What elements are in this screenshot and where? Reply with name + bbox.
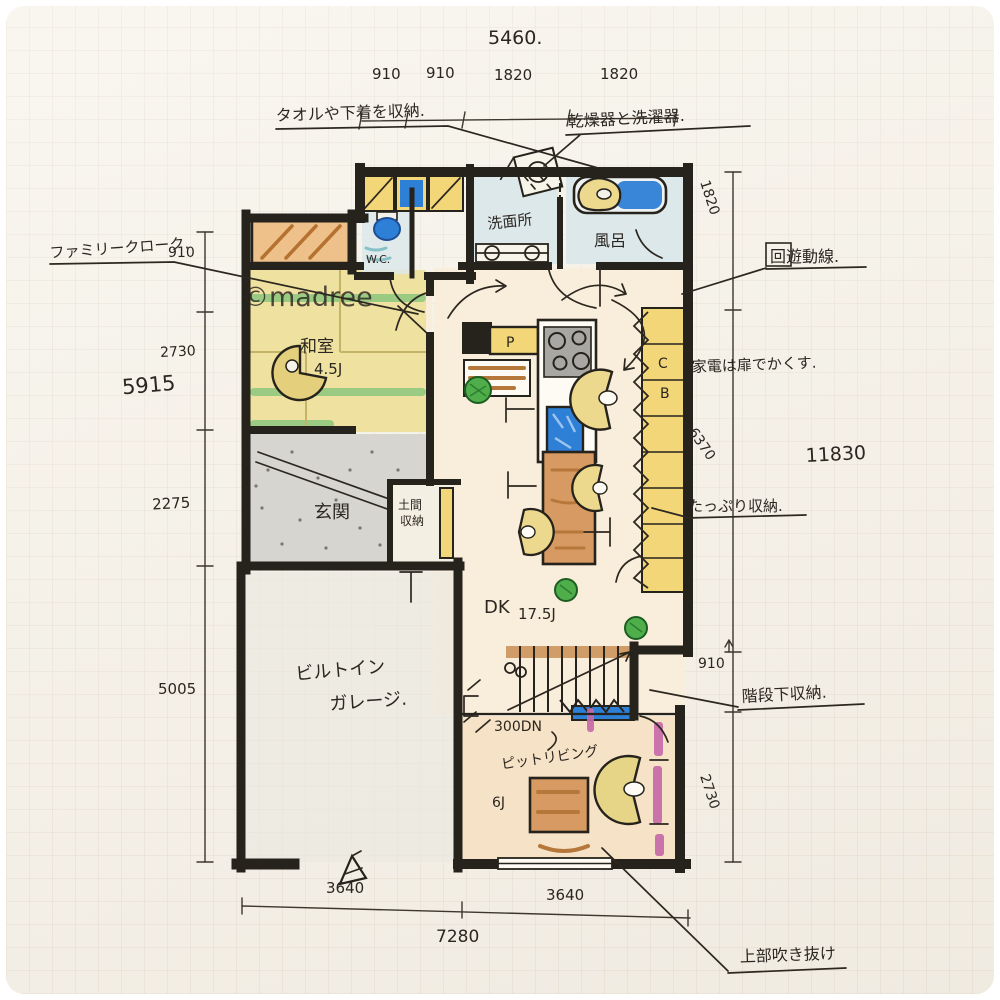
- label-cupboard-c: C: [658, 356, 668, 372]
- label-cupboard-b: B: [660, 386, 670, 402]
- dim-left-seg3: 2275: [152, 493, 191, 513]
- dim-top-seg3: 1820: [494, 66, 532, 84]
- floor-plan-svg: 5460. 910 910 1820 1820 910 2730 5915 22…: [0, 0, 1000, 1000]
- dim-right-seg3: 910: [698, 656, 725, 672]
- annotation-dryer-washer: 乾燥器と洗濯器.: [567, 106, 685, 131]
- label-pantry-p: P: [506, 335, 514, 351]
- annotation-towel-storage: タオルや下着を収納.: [275, 101, 425, 125]
- dryer-leader: [544, 126, 750, 166]
- kitchen-wall-chunk: [462, 322, 492, 354]
- dim-top-seg1: 910: [372, 65, 401, 83]
- dim-bottom-seg2: 3640: [546, 886, 584, 904]
- doma-door: [440, 488, 453, 558]
- annotation-circulation: 回遊動線.: [770, 247, 839, 266]
- annotation-void-above: 上部吹き抜け: [739, 944, 836, 966]
- annotation-ample-storage: たっぷり収納.: [688, 497, 783, 515]
- garage-floor: [246, 572, 454, 862]
- dim-right-seg1: 1820: [696, 178, 722, 217]
- annotation-under-stair: 階段下収納.: [741, 683, 827, 706]
- person-head: [593, 482, 607, 494]
- label-step-down: 300DN: [494, 719, 542, 735]
- dim-right-seg4: 2730: [696, 772, 722, 811]
- pantry-shelf-column: [642, 308, 686, 592]
- annotation-hide-appliances: 家電は扉でかくす.: [692, 354, 817, 376]
- room-bath: 風呂: [594, 231, 626, 250]
- room-dk-size: 17.5J: [518, 605, 556, 623]
- dim-top-seg4: 1820: [600, 65, 638, 83]
- person-head: [624, 782, 644, 796]
- room-entrance: 玄関: [314, 502, 350, 523]
- dim-left-seg2: 2730: [160, 343, 196, 361]
- circulation-leader: [682, 267, 866, 294]
- dim-arrow-910: [725, 640, 733, 652]
- dim-left-total: 5915: [121, 371, 176, 400]
- person-head: [597, 189, 611, 199]
- dim-left-seg4: 5005: [158, 680, 196, 698]
- person-head: [521, 526, 535, 538]
- dim-top-total: 5460.: [488, 27, 542, 49]
- dim-line-bottom: [242, 906, 690, 918]
- dim-right-total: 11830: [805, 442, 867, 467]
- stair-top-edge: [506, 646, 632, 658]
- watermark: ©madree: [242, 282, 373, 313]
- floor-plan-sketch: 5460. 910 910 1820 1820 910 2730 5915 22…: [0, 0, 1000, 1000]
- person-head: [286, 360, 298, 372]
- person-head: [599, 391, 617, 405]
- room-dk: DK: [484, 597, 511, 618]
- toilet-icon: [374, 218, 400, 240]
- dim-bottom-total: 7280: [436, 927, 479, 947]
- room-doma-line2: 収納: [400, 514, 424, 528]
- bath-water: [616, 181, 662, 209]
- room-tatami: 和室: [300, 337, 334, 357]
- room-tatami-size: 4.5J: [314, 360, 342, 378]
- dim-top-seg2: 910: [426, 64, 455, 82]
- room-wc: W.C.: [366, 253, 390, 266]
- pit-table: [530, 778, 588, 832]
- room-pit-size: 6J: [492, 795, 505, 811]
- room-doma-line1: 土間: [398, 498, 422, 512]
- dim-bottom-seg1: 3640: [326, 879, 364, 897]
